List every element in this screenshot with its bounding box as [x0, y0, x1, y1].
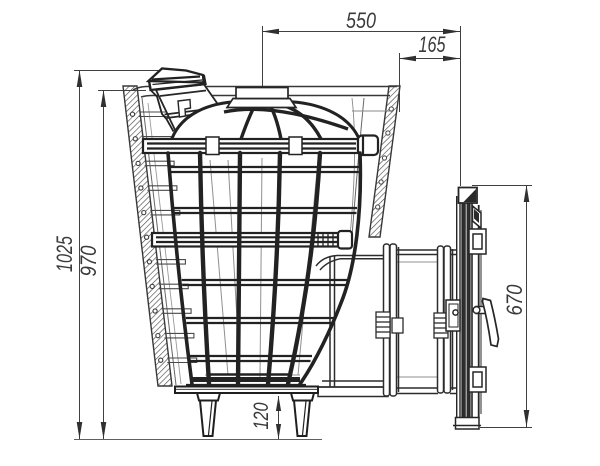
svg-text:970: 970: [76, 245, 101, 277]
svg-text:1025: 1025: [52, 235, 77, 272]
svg-text:165: 165: [419, 32, 447, 57]
svg-text:670: 670: [502, 284, 527, 316]
svg-text:120: 120: [250, 402, 273, 429]
svg-text:550: 550: [346, 8, 377, 33]
